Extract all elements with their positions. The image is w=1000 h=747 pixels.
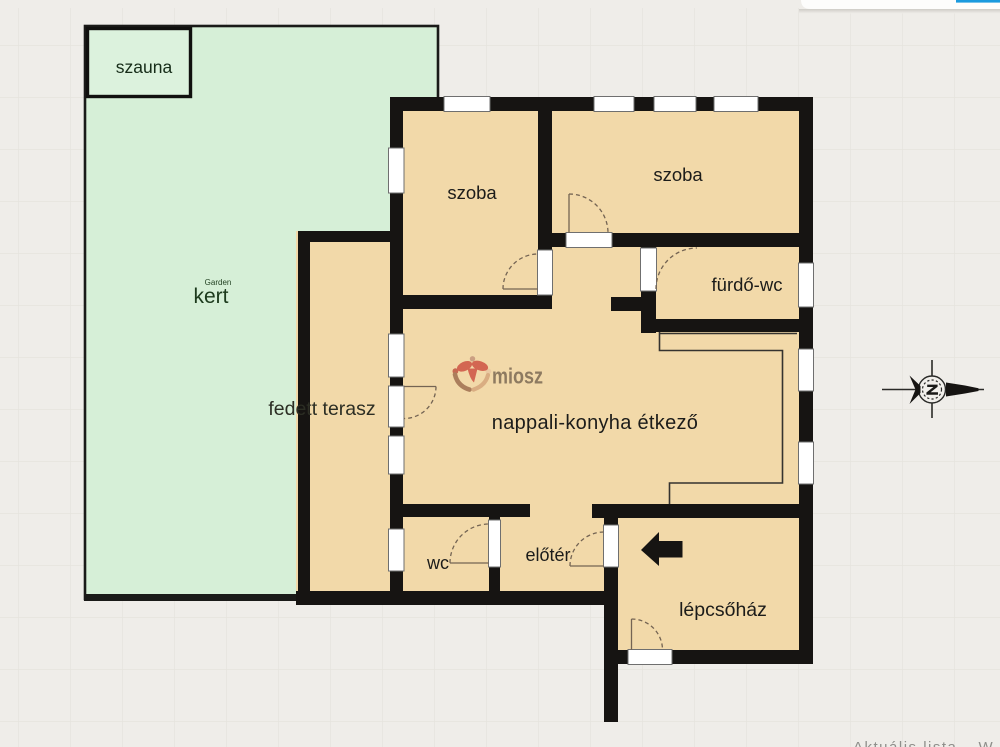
svg-text:lépcsőház: lépcsőház [679,599,767,621]
svg-text:szoba: szoba [447,182,497,203]
svg-text:fürdő-wc: fürdő-wc [712,274,783,295]
svg-text:előtér: előtér [525,545,570,565]
svg-text:Aktuális lista – W: Aktuális lista – W [853,739,994,747]
svg-text:kert: kert [193,285,228,308]
svg-text:szoba: szoba [653,164,703,185]
svg-text:nappali-konyha étkező: nappali-konyha étkező [492,412,698,434]
svg-text:fedett terasz: fedett terasz [268,398,375,420]
svg-text:wc: wc [426,553,449,573]
svg-text:miosz: miosz [492,364,543,389]
svg-text:szauna: szauna [116,57,173,77]
